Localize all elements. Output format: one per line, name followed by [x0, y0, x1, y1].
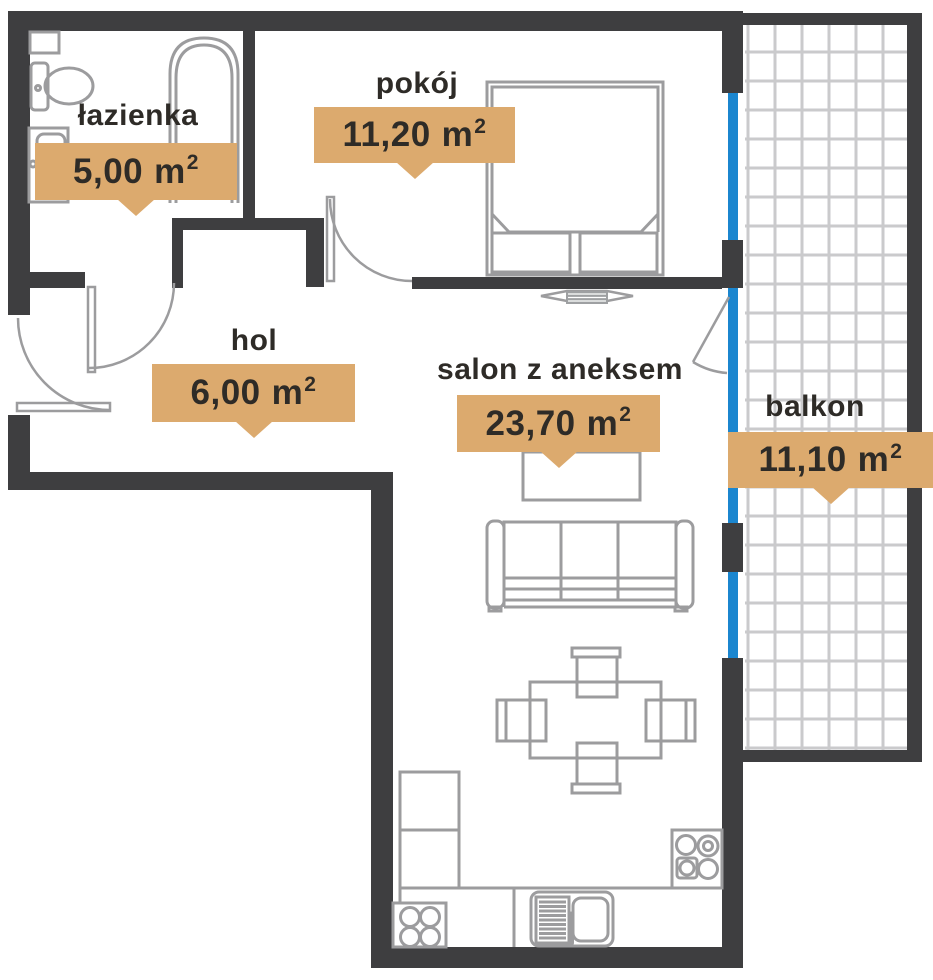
area-badge-hol: 6,00m2: [152, 364, 355, 422]
room-name-lazienka: łazienka: [78, 99, 199, 133]
area-unit: m: [587, 404, 619, 444]
chair-icon: [646, 700, 695, 741]
kitchen-sink-icon: [531, 892, 613, 946]
cooktop-icon: [672, 830, 722, 888]
room-name-salon: salon z aneksem: [437, 353, 683, 387]
tv-icon: [541, 291, 633, 304]
area-badge-pokoj: 11,20m2: [314, 107, 515, 163]
area-unit: m: [154, 152, 186, 192]
area-unit: m: [272, 373, 304, 413]
chair-icon: [572, 648, 620, 697]
badge-pointer: [812, 487, 850, 504]
bedroom-door-icon: [327, 197, 412, 281]
room-name-pokoj: pokój: [376, 67, 459, 101]
area-value: 11,20: [343, 115, 431, 155]
floor-plan: łazienka pokój hol salon z aneksem balko…: [0, 0, 933, 980]
area-value: 5,00: [73, 152, 143, 192]
area-value: 11,10: [759, 440, 847, 480]
bathroom-shelf-icon: [30, 32, 59, 53]
area-value: 6,00: [191, 373, 261, 413]
balcony-tiles: [745, 25, 907, 750]
badge-pointer: [396, 162, 434, 179]
area-unit: m: [442, 115, 474, 155]
room-name-balkon: balkon: [765, 390, 865, 424]
badge-pointer: [117, 199, 155, 216]
area-badge-balkon: 11,10m2: [728, 432, 933, 488]
area-badge-salon: 23,70m2: [457, 395, 660, 452]
bathroom-door-icon: [88, 283, 174, 372]
area-unit: m: [858, 440, 890, 480]
chair-icon: [497, 700, 546, 741]
hob-icon: [393, 903, 446, 947]
area-badge-lazienka: 5,00m2: [35, 143, 237, 200]
badge-pointer: [235, 421, 273, 438]
room-name-hol: hol: [231, 324, 278, 358]
window-glass-lines: [728, 93, 738, 658]
area-value: 23,70: [486, 404, 576, 444]
sofa-icon: [487, 521, 693, 611]
balcony-door-icon: [693, 297, 729, 373]
chair-icon: [572, 743, 620, 793]
dining-table-icon: [530, 682, 661, 758]
badge-pointer: [540, 451, 578, 468]
